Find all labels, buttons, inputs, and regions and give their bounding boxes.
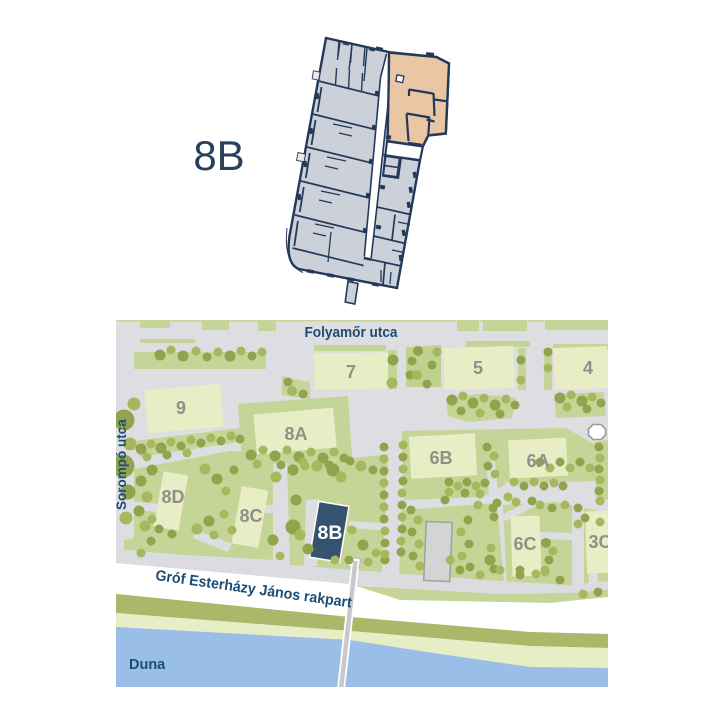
svg-text:8C: 8C <box>239 506 262 526</box>
svg-text:Duna: Duna <box>129 657 166 673</box>
svg-text:6C: 6C <box>513 534 536 554</box>
svg-text:4: 4 <box>583 358 593 378</box>
svg-text:6A: 6A <box>526 451 549 471</box>
svg-text:5: 5 <box>473 358 483 378</box>
svg-text:8B: 8B <box>193 132 244 179</box>
svg-text:8D: 8D <box>161 487 184 507</box>
svg-text:8B: 8B <box>318 522 343 544</box>
svg-text:Folyamőr utca: Folyamőr utca <box>305 324 399 341</box>
svg-text:9: 9 <box>176 398 186 418</box>
svg-text:6B: 6B <box>429 448 452 468</box>
svg-text:7: 7 <box>346 362 356 382</box>
svg-text:Sorompó utca: Sorompó utca <box>114 419 129 510</box>
svg-text:8A: 8A <box>284 424 307 444</box>
